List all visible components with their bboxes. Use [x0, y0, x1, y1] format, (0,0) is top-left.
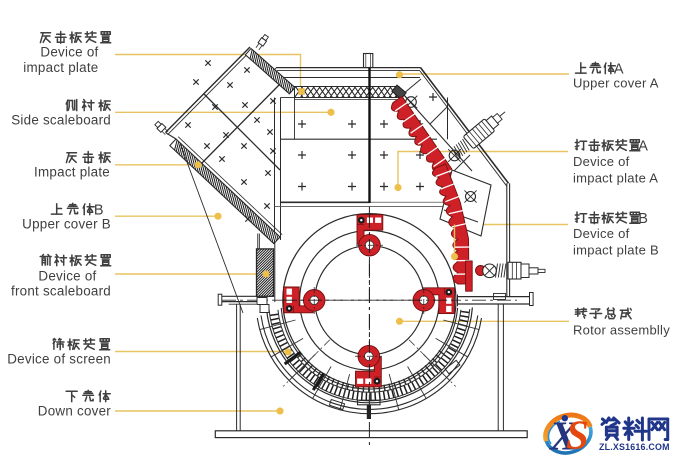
svg-text:Down cover: Down cover: [38, 404, 111, 419]
svg-text:Rotor assemblly: Rotor assemblly: [573, 323, 670, 338]
svg-text:Upper cover B: Upper cover B: [22, 217, 111, 232]
svg-text:impact plate B: impact plate B: [573, 243, 659, 258]
svg-text:Side scaleboard: Side scaleboard: [11, 113, 111, 128]
svg-text:S: S: [566, 412, 589, 458]
svg-text:Device of: Device of: [38, 269, 96, 284]
svg-text:impact plate A: impact plate A: [573, 171, 658, 186]
svg-text:Device of: Device of: [40, 45, 98, 60]
svg-text:front scaleboard: front scaleboard: [11, 284, 111, 299]
svg-text:A: A: [638, 139, 648, 155]
svg-text:B: B: [638, 211, 648, 227]
svg-text:Upper cover A: Upper cover A: [573, 76, 659, 91]
svg-text:impact plate: impact plate: [23, 60, 98, 75]
svg-text:ZL.XS1616.COM: ZL.XS1616.COM: [599, 442, 670, 452]
svg-text:Device of: Device of: [573, 226, 630, 241]
svg-text:Device of screen: Device of screen: [7, 352, 111, 367]
svg-text:Device of: Device of: [573, 154, 630, 169]
svg-text:Impact plate: Impact plate: [34, 165, 110, 180]
